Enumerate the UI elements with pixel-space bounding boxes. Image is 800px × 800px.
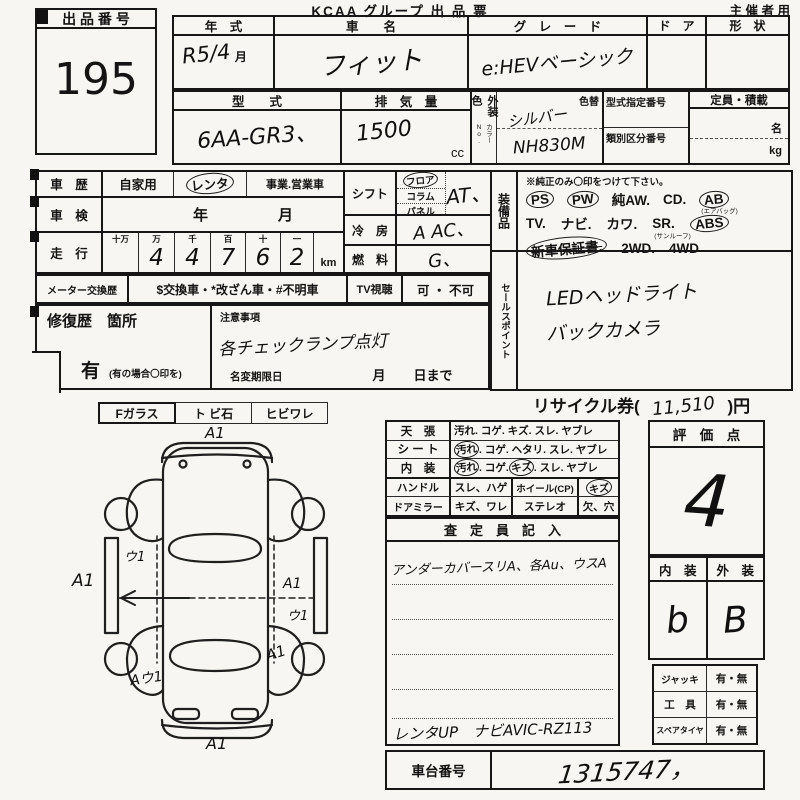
- capacity-label: 定員・積載: [690, 92, 788, 109]
- lot-label: 出 品 番 号: [37, 10, 155, 29]
- tv-options: 可 ・ 不可: [403, 276, 488, 302]
- fender: [127, 480, 163, 542]
- capacity-weight: kg: [690, 139, 788, 157]
- jack-row: ジャッキ 有・無: [654, 666, 756, 692]
- shift-column-option: コラム: [397, 189, 445, 204]
- color-change-label: 色替: [579, 93, 599, 108]
- equip-ab-sub: (エアバッグ): [701, 205, 738, 215]
- damage-ann-left-door: ウ1: [124, 546, 145, 565]
- note-line: [392, 584, 614, 585]
- caution-value: 各チェックランプ点灯: [218, 321, 489, 360]
- name-cell: 車 名 フィット: [275, 17, 469, 88]
- damage-ann-right-door: ウ1: [287, 605, 308, 624]
- salespoint-line2: バックカメラ: [545, 307, 791, 347]
- spare-options: 有・無: [707, 718, 756, 743]
- spare-row: スペアタイヤ 有・無: [654, 718, 756, 743]
- ceiling-options: 汚れ. コゲ. キズ. スレ. ヤブレ: [451, 422, 618, 440]
- repair-yes: 有: [81, 356, 100, 383]
- rename-label: 名変期限日: [230, 369, 283, 384]
- ceiling-row: 天 張 汚れ. コゲ. キズ. スレ. ヤブレ: [387, 422, 618, 441]
- shift-options: フロア コラム パネル: [397, 172, 446, 214]
- stereo-label: ステレオ: [513, 497, 579, 515]
- ac-value: A AC、: [412, 214, 475, 245]
- model-value: 6AA-GR3、: [196, 115, 318, 155]
- equip-navi: ナビ.: [561, 213, 592, 233]
- meter-label: メーター交換歴: [37, 276, 129, 302]
- color-no-label: カラーNo.: [476, 124, 493, 160]
- km-unit: km: [314, 233, 343, 272]
- handle-options: スレ、ハゲ: [451, 479, 513, 497]
- meter-row: メーター交換歴 $交換車・*改ざん車・#不明車 TV視聴 可 ・ 不可: [35, 274, 490, 304]
- wheel-label: ホイール(CP): [513, 479, 579, 497]
- year-label: 年 式: [174, 17, 273, 36]
- rating-box: 評 価 点 4: [648, 420, 765, 556]
- specs-block: シフト フロア コラム パネル AT、 冷 房 A AC、 燃 料 G、: [343, 170, 492, 274]
- typeno-cell: 型式指定番号 類別区分番号: [604, 92, 690, 163]
- wheel: [292, 498, 324, 530]
- equipment-line1: PS PW 純AW. CD. AB (エアバッグ): [526, 189, 787, 209]
- equip-pw: PW: [566, 189, 599, 209]
- name-label: 車 名: [275, 17, 467, 36]
- spare-label: スペアタイヤ: [654, 718, 707, 743]
- mirror-row: ドアミラー キズ、ワレ ステレオ 欠、穴: [387, 497, 618, 515]
- inspection-month: 月: [278, 204, 293, 225]
- car-body: [163, 448, 268, 723]
- equip-ps: PS: [525, 189, 554, 208]
- rename-day: 日まで: [414, 365, 453, 384]
- grade-cell: グ レ ー ド e:HEVベーシック: [469, 17, 648, 88]
- repair-box: 修復歴 箇所 有 (有の場合〇印を) 注意事項 各チェックランプ点灯 名変期限日…: [35, 304, 490, 390]
- row-mark: [30, 196, 39, 207]
- exterior-grade-col: 外 装 B: [708, 558, 764, 658]
- glass-header: Fガラス ト ビ石 ヒビワレ: [98, 402, 328, 424]
- repair-yes-note: (有の場合〇印を): [109, 366, 182, 380]
- seat-options: . コゲ. ヘタリ. スレ. ヤブレ: [479, 442, 607, 457]
- wheel: [105, 498, 137, 530]
- lot-number: 195: [37, 29, 155, 129]
- inspector-note1: アンダーカバースリA、各Au、ウスA: [391, 552, 607, 579]
- equipment-box: 装備品 ※純正のみ〇印をつけて下さい。 PS PW 純AW. CD. AB (エ…: [490, 170, 793, 252]
- fuel-value: G、: [426, 244, 460, 273]
- crack-label: ヒビワレ: [252, 402, 328, 424]
- interior-options-mid: . コゲ.: [479, 460, 509, 475]
- shift-row: シフト フロア コラム パネル AT、: [345, 172, 490, 216]
- recycle-amount: 11,510: [643, 392, 724, 421]
- history-business: 事業.営業車: [247, 172, 343, 196]
- classno-label: 類別区分番号: [604, 128, 688, 163]
- arrow-left: [121, 591, 189, 605]
- digit-value: 4: [139, 244, 174, 272]
- tool-row: 工 具 有・無: [654, 692, 756, 718]
- rental-circled: レンタ: [185, 171, 234, 196]
- interior-grade-label: 内 装: [650, 558, 706, 582]
- jack-label: ジャッキ: [654, 666, 707, 691]
- row-mark: [30, 169, 39, 180]
- equip-cd: CD.: [663, 192, 686, 207]
- fuel-row: 燃 料 G、: [345, 246, 490, 272]
- vehicle-row2: 型 式 6AA-GR3、 排 気 量 1500 cc 外装色 カラーNo. 色替…: [172, 90, 790, 165]
- shift-floor-circled: フロア: [403, 171, 439, 190]
- damage-ann-left-side: A1: [72, 571, 94, 591]
- color-cell: 外装色 カラーNo. 色替 シルバー NH830M: [472, 92, 604, 163]
- tool-options: 有・無: [707, 692, 756, 717]
- rating-score: 4: [681, 457, 733, 544]
- salespoint-label: セールスポイント: [497, 283, 511, 359]
- digit-value: 6: [246, 244, 280, 272]
- exterior-grade-label: 外 装: [708, 558, 764, 582]
- door-cell: ド ア: [648, 17, 707, 88]
- history-label: 車 歴: [37, 172, 103, 196]
- digit-header: 一: [281, 233, 313, 244]
- rocker-left: [105, 538, 118, 633]
- interior-label: 内 装: [387, 459, 451, 477]
- grade-label: グ レ ー ド: [469, 17, 646, 36]
- inspection-row: 車 検 年 月: [37, 198, 343, 233]
- headlight-dot: [244, 461, 251, 468]
- repair-left-cell: 修復歴 箇所 有 (有の場合〇印を): [37, 306, 212, 388]
- tool-label: 工 具: [654, 692, 707, 717]
- sheet-title: KCAA グループ 出 品 票: [210, 0, 590, 15]
- model-label: 型 式: [174, 92, 340, 111]
- color-value: シルバー: [506, 103, 568, 132]
- model-cell: 型 式 6AA-GR3、: [174, 92, 342, 163]
- lot-box: 出 品 番 号 195: [35, 8, 157, 155]
- rear-window: [170, 640, 260, 671]
- inspection-year: 年: [193, 204, 208, 225]
- exterior-grade-value: B: [721, 599, 749, 642]
- chassis-row: 車台番号 1315747，: [385, 750, 765, 790]
- history-block: 車 歴 自家用 レンタ 事業.営業車 車 検 年 月 走 行 十万 万 4 千 …: [35, 170, 345, 274]
- note-line: [392, 689, 614, 690]
- wheel-scratch-circled: キズ: [585, 478, 612, 497]
- equipment-label: 装備品: [496, 193, 513, 229]
- shape-cell: 形 状: [707, 17, 788, 88]
- history-private: 自家用: [103, 172, 174, 196]
- door-label: ド ア: [648, 17, 705, 36]
- digit-value: 2: [281, 244, 313, 272]
- interior-options-rest: . スレ. ヤブレ: [534, 460, 598, 475]
- windshield: [169, 534, 261, 562]
- car-name-value: フィット: [318, 39, 424, 83]
- caution-label: 注意事項: [212, 306, 488, 324]
- vehicle-row1: 年 式 R5/4 月 車 名 フィット グ レ ー ド e:HEVベーシック ド…: [172, 15, 790, 90]
- equip-sr-sub: (サンルーフ): [654, 230, 690, 240]
- shift-value: AT、: [444, 176, 491, 209]
- auction-sheet: KCAA グループ 出 品 票 主 催 者 用 出 品 番 号 195 年 式 …: [0, 0, 800, 800]
- seat-row: シ ー ト 汚れ . コゲ. ヘタリ. スレ. ヤブレ: [387, 441, 618, 460]
- chassis-value: 1315747，: [557, 748, 699, 791]
- corner-mark: [36, 10, 48, 24]
- recycle-suffix: )円: [728, 397, 751, 416]
- displacement-label: 排 気 量: [342, 92, 470, 111]
- headlight-dot: [180, 461, 187, 468]
- digit-header: 百: [211, 233, 245, 244]
- digit-value: 7: [211, 244, 245, 272]
- mirror-label: ドアミラー: [387, 497, 451, 515]
- equip-kawa: カワ.: [607, 213, 638, 233]
- equipment-line2: TV. ナビ. カワ. SR. (サンルーフ) ABS: [526, 213, 787, 233]
- repair-notch: [32, 351, 61, 393]
- salespoint-line1: LEDヘッドライト: [545, 272, 791, 312]
- fuel-label: 燃 料: [345, 246, 397, 272]
- displacement-cell: 排 気 量 1500 cc: [342, 92, 472, 163]
- taillight: [232, 709, 258, 719]
- interior-grade-value: b: [665, 599, 691, 642]
- chassis-label: 車台番号: [387, 752, 492, 788]
- mileage-row: 走 行 十万 万 4 千 4 百 7 十 6 一 2 km: [37, 233, 343, 272]
- equip-aw: 純AW.: [612, 189, 650, 209]
- recycle-label: リサイクル券(: [533, 397, 640, 416]
- history-rental: レンタ: [174, 172, 247, 196]
- seat-dirt-circled: 汚れ: [453, 440, 479, 459]
- rear-bumper-line: [162, 725, 272, 729]
- year-cell: 年 式 R5/4 月: [174, 17, 275, 88]
- car-diagram: [85, 428, 350, 768]
- digit-header: 千: [175, 233, 210, 244]
- color-code-value: NH830M: [513, 133, 587, 158]
- damage-ann-rear: A1: [206, 734, 227, 753]
- front-bumper: [162, 443, 272, 462]
- equipment-label-strip: 装備品: [492, 172, 518, 250]
- displacement-unit: cc: [451, 145, 464, 160]
- salespoint-box: セールスポイント LEDヘッドライト バックカメラ: [490, 250, 793, 391]
- rename-month: 月: [373, 365, 386, 384]
- shift-label: シフト: [345, 172, 397, 214]
- interior-dirt-circled: 汚れ: [453, 458, 479, 477]
- rocker-right: [314, 538, 327, 633]
- ac-label: 冷 房: [345, 216, 397, 244]
- jack-options: 有・無: [707, 666, 756, 691]
- equip-abs: ABS: [689, 213, 729, 233]
- note-line: [392, 619, 614, 620]
- equip-sr: SR.: [652, 216, 675, 231]
- year-month-label: 月: [235, 50, 247, 64]
- digit-header: 万: [139, 233, 174, 244]
- typeno-label: 型式指定番号: [604, 92, 688, 128]
- recycle-row: リサイクル券( 11,510 )円: [490, 392, 793, 420]
- ac-row: 冷 房 A AC、: [345, 216, 490, 246]
- mileage-label: 走 行: [37, 233, 103, 272]
- repair-right-cell: 注意事項 各チェックランプ点灯 名変期限日 月 日まで: [212, 306, 488, 388]
- color-label-strip: 外装色 カラーNo.: [472, 92, 497, 163]
- inspector-box: 査 定 員 記 入 アンダーカバースリA、各Au、ウスA レンタUP ナビAVI…: [385, 517, 620, 746]
- grade-value: e:HEVベーシック: [481, 41, 635, 81]
- interior-row: 内 装 汚れ . コゲ. キズ . スレ. ヤブレ: [387, 459, 618, 479]
- inspection-label: 車 検: [37, 198, 103, 231]
- equip-tv: TV.: [526, 216, 546, 231]
- condition-grid: 天 張 汚れ. コゲ. キズ. スレ. ヤブレ シ ー ト 汚れ . コゲ. ヘ…: [385, 420, 620, 517]
- inspector-header: 査 定 員 記 入: [387, 519, 618, 542]
- accessories-box: ジャッキ 有・無 工 具 有・無 スペアタイヤ 有・無: [652, 664, 758, 745]
- capacity-persons: 名: [690, 109, 788, 139]
- wheel: [292, 643, 324, 675]
- handle-label: ハンドル: [387, 479, 451, 497]
- mirror-options: キズ、ワレ: [451, 497, 513, 515]
- meter-options: $交換車・*改ざん車・#不明車: [129, 276, 348, 302]
- ceiling-label: 天 張: [387, 422, 451, 440]
- history-row: 車 歴 自家用 レンタ 事業.営業車: [37, 172, 343, 198]
- stereo-options: 欠、穴: [579, 497, 618, 515]
- note-line: [392, 654, 614, 655]
- fglass-label: Fガラス: [98, 402, 176, 424]
- capacity-cell: 定員・積載 名 kg: [690, 92, 788, 163]
- rating-label: 評 価 点: [650, 422, 763, 448]
- color-label: 外装色: [468, 95, 500, 124]
- digit-value: 4: [175, 244, 210, 272]
- interior-grade-col: 内 装 b: [650, 558, 708, 658]
- taillight: [173, 709, 199, 719]
- fender: [268, 480, 304, 542]
- digit-header: 十: [246, 233, 280, 244]
- displacement-value: 1500: [355, 116, 413, 147]
- shape-label: 形 状: [707, 17, 788, 36]
- repair-label: 修復歴 箇所: [37, 306, 210, 331]
- inspector-note2: レンタUP ナビAVIC-RZ113: [393, 717, 593, 745]
- row-mark: [30, 231, 39, 242]
- digit-header: 十万: [103, 233, 138, 244]
- audience-label: 主 催 者 用: [650, 0, 790, 15]
- row-mark: [30, 306, 39, 317]
- handle-row: ハンドル スレ、ハゲ ホイール(CP) キズ: [387, 479, 618, 498]
- damage-ann-front: A1: [205, 424, 225, 442]
- tv-label: TV視聴: [348, 276, 403, 302]
- equipment-note: ※純正のみ〇印をつけて下さい。: [526, 174, 787, 188]
- front-bumper-line: [162, 455, 272, 459]
- seat-label: シ ー ト: [387, 441, 451, 459]
- damage-ann-right-side: A1: [283, 576, 301, 592]
- year-value: R5/4: [181, 40, 232, 69]
- grade-box: 内 装 b 外 装 B: [648, 556, 765, 660]
- stonechip-label: ト ビ石: [176, 402, 252, 424]
- salespoint-label-strip: セールスポイント: [492, 252, 518, 389]
- interior-scratch-circled: キズ: [508, 458, 534, 477]
